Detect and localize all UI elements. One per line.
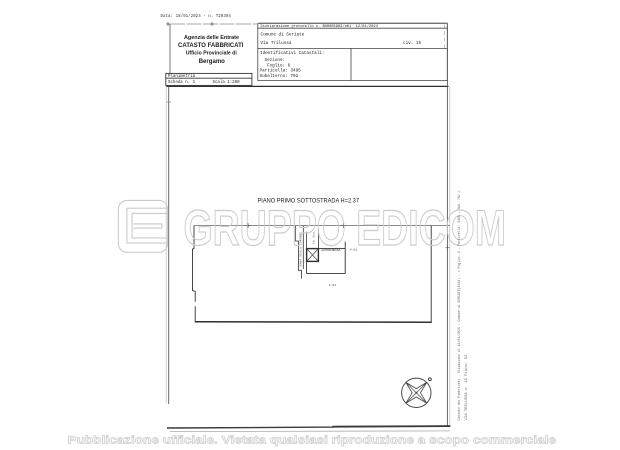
svg-text:Subalterno: 702: Subalterno: 702 [260,74,299,79]
svg-text:Via Trilussa: Via Trilussa [261,41,292,46]
svg-text:Catasto dei Fabbricati - Situa: Catasto dei Fabbricati - Situazione al 1… [457,191,462,421]
svg-text:Bergamo: Bergamo [199,58,225,65]
svg-text:Comune di Seriate: Comune di Seriate [261,32,305,37]
svg-text:Data: 18/01/2024 - n. T20394: Data: 18/01/2024 - n. T20394 [161,14,232,19]
svg-text:Agenzia delle Entrate: Agenzia delle Entrate [184,35,239,41]
svg-text:Scheda n. 1: Scheda n. 1 [168,80,196,85]
svg-text:Sezione:: Sezione: [265,58,286,63]
svg-text:Particella: 3495: Particella: 3495 [260,69,302,74]
svg-text:Dichiarazione protocollo n. BG: Dichiarazione protocollo n. BG0005963/e0… [261,24,379,29]
svg-text:Pubblicazione ufficiale. Vieta: Pubblicazione ufficiale. Vietata qualsia… [68,434,557,446]
svg-text:4.61: 4.61 [329,284,336,287]
svg-text:VIA TRILUSSA n. 15 Piano: S2: VIA TRILUSSA n. 15 Piano: S2 [464,355,469,421]
svg-text:CATASTO FABBRICATI: CATASTO FABBRICATI [178,42,244,49]
svg-text:Foglio: 6: Foglio: 6 [267,63,291,68]
svg-text:Ufficio Provinciale di: Ufficio Provinciale di [186,51,238,57]
svg-text:Identificativi Catastali:: Identificativi Catastali: [260,51,324,56]
svg-text:Planimetria: Planimetria [168,74,196,79]
svg-text:Scala 1:200: Scala 1:200 [213,80,241,85]
svg-text:civ. 15: civ. 15 [403,41,421,46]
